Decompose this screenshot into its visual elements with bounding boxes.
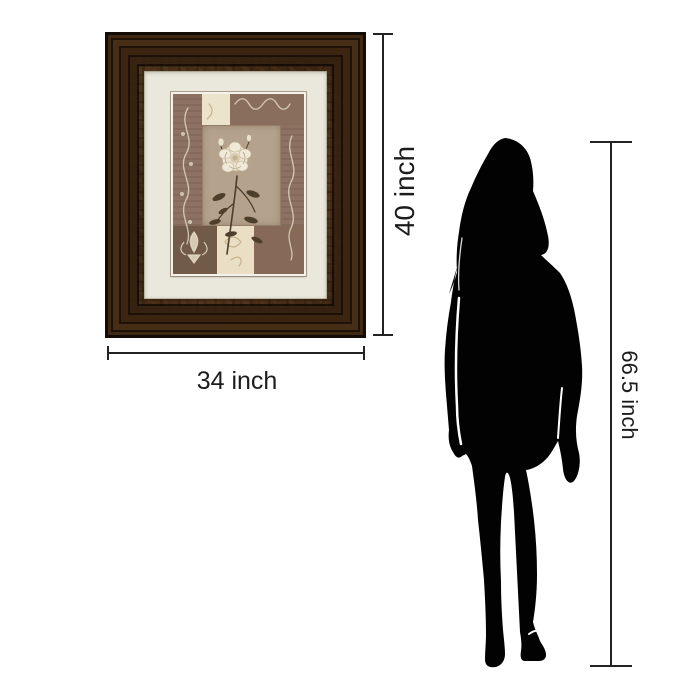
floral-collage-artwork xyxy=(171,92,306,276)
frame-height-bottom-cap xyxy=(373,334,393,336)
person-height-dimension-line xyxy=(610,141,612,667)
rose-illustration xyxy=(173,94,304,274)
product-dimension-diagram: 40 inch 34 inch 66.5 inch xyxy=(0,0,700,700)
person-height-top-cap xyxy=(590,141,632,143)
frame-width-label: 34 inch xyxy=(157,366,317,396)
person-height-label: 66.5 inch xyxy=(617,335,641,455)
mat-board xyxy=(144,71,327,299)
woman-silhouette xyxy=(436,138,601,673)
frame-width-right-cap xyxy=(363,346,365,360)
frame-width-dimension-line xyxy=(107,352,365,354)
frame-height-label: 40 inch xyxy=(390,131,420,251)
picture-frame xyxy=(106,33,365,337)
person-height-bottom-cap xyxy=(590,665,632,667)
frame-height-dimension-line xyxy=(382,33,384,336)
frame-height-top-cap xyxy=(373,33,393,35)
frame-width-left-cap xyxy=(107,346,109,360)
